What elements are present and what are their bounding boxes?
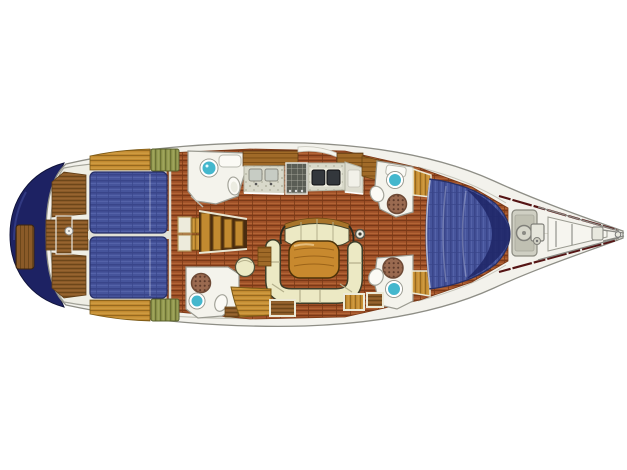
cockpit-bench-port bbox=[52, 172, 86, 217]
shower-grate bbox=[388, 195, 407, 214]
saloon-table bbox=[289, 241, 339, 278]
cockpit-bench-starboard bbox=[52, 253, 86, 298]
step bbox=[224, 219, 232, 248]
bow-roller bbox=[615, 232, 621, 238]
aft-berth-port bbox=[90, 172, 167, 233]
windlass bbox=[531, 224, 544, 245]
sink bbox=[249, 169, 262, 181]
floorplan-drawing bbox=[0, 0, 627, 470]
chart-table bbox=[345, 162, 363, 194]
boat-floorplan bbox=[0, 0, 627, 470]
companionway bbox=[178, 211, 247, 253]
aft-berth-starboard bbox=[90, 237, 167, 298]
aft-head-starboard bbox=[186, 267, 239, 318]
mast bbox=[356, 230, 365, 239]
washbasin bbox=[191, 295, 204, 308]
dark-sink bbox=[312, 170, 325, 185]
step bbox=[213, 216, 221, 250]
washbasin bbox=[388, 173, 402, 187]
green-cushion-starboard bbox=[151, 299, 179, 321]
stove bbox=[286, 163, 307, 194]
swim-platform bbox=[16, 225, 34, 269]
step bbox=[235, 221, 243, 246]
green-cushion-port bbox=[151, 149, 179, 171]
step bbox=[201, 213, 210, 252]
washbasin bbox=[387, 282, 401, 296]
sink bbox=[265, 169, 278, 181]
dark-sink bbox=[327, 170, 340, 185]
shower-grate bbox=[192, 274, 211, 293]
washbasin bbox=[202, 161, 217, 176]
shower-grate bbox=[383, 258, 403, 278]
